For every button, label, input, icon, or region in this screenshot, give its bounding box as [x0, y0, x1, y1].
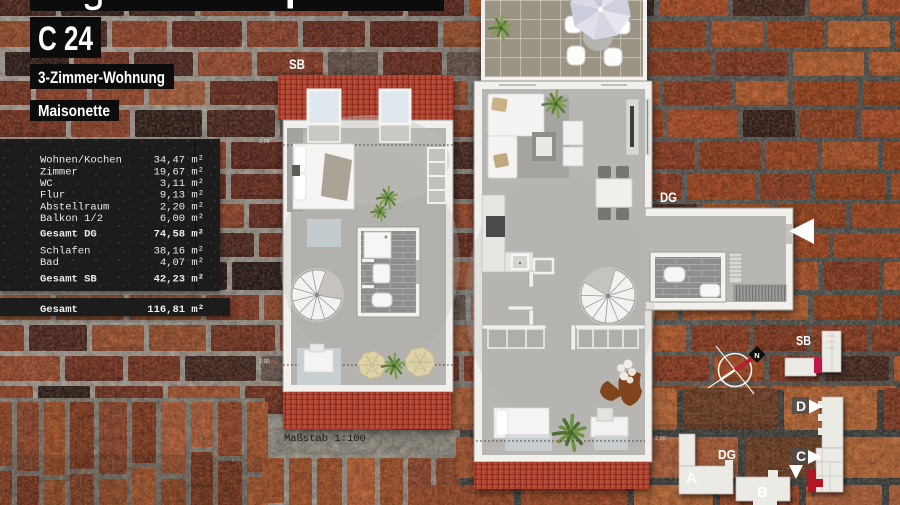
svg-text:Gesamt: Gesamt — [40, 304, 78, 316]
svg-text:Flur: Flur — [40, 190, 65, 202]
svg-text:C: C — [796, 448, 806, 464]
svg-text:Wohnen/Kochen: Wohnen/Kochen — [40, 155, 122, 167]
svg-text:D: D — [796, 398, 806, 414]
svg-text:Maßstab 1:100: Maßstab 1:100 — [284, 433, 366, 445]
svg-text:Abstellraum: Abstellraum — [40, 202, 109, 214]
svg-text:38,16 m²: 38,16 m² — [154, 246, 204, 258]
svg-text:Schlafen: Schlafen — [40, 246, 90, 258]
svg-text:DG: DG — [718, 447, 736, 462]
svg-text:3,11 m²: 3,11 m² — [160, 178, 204, 190]
svg-text:SB: SB — [796, 333, 811, 348]
svg-text:2,20 m²: 2,20 m² — [160, 202, 204, 214]
svg-text:42,23 m²: 42,23 m² — [154, 274, 204, 286]
svg-text:2,00 m: 2,00 m — [655, 436, 672, 442]
svg-text:116,81 m²: 116,81 m² — [147, 304, 204, 316]
svg-text:9,13 m²: 9,13 m² — [160, 190, 204, 202]
svg-text:34,47 m²: 34,47 m² — [154, 155, 204, 167]
svg-text:3-Zimmer-Wohnung: 3-Zimmer-Wohnung — [38, 68, 165, 87]
svg-text:4,07 m²: 4,07 m² — [160, 257, 204, 269]
svg-text:WC: WC — [40, 178, 53, 190]
svg-text:DG: DG — [660, 189, 677, 205]
svg-text:74,58 m²: 74,58 m² — [154, 229, 204, 241]
svg-text:2,00 m: 2,00 m — [259, 359, 276, 365]
svg-text:N: N — [754, 351, 759, 360]
svg-text:Gesamt DG: Gesamt DG — [40, 229, 97, 241]
svg-text:Gesamt SB: Gesamt SB — [40, 274, 97, 286]
svg-text:B: B — [757, 484, 768, 501]
svg-text:A: A — [686, 470, 697, 487]
svg-text:2,00 m: 2,00 m — [259, 139, 276, 145]
svg-text:Zimmer: Zimmer — [40, 167, 78, 179]
svg-text:SB: SB — [289, 56, 305, 72]
svg-text:C 24: C 24 — [38, 20, 93, 58]
svg-text:6,00 m²: 6,00 m² — [160, 213, 204, 225]
svg-text:19,67 m²: 19,67 m² — [154, 167, 204, 179]
svg-text:Bad: Bad — [40, 257, 59, 269]
svg-text:Balkon 1/2: Balkon 1/2 — [40, 213, 103, 225]
svg-text:Maisonette: Maisonette — [38, 103, 110, 120]
